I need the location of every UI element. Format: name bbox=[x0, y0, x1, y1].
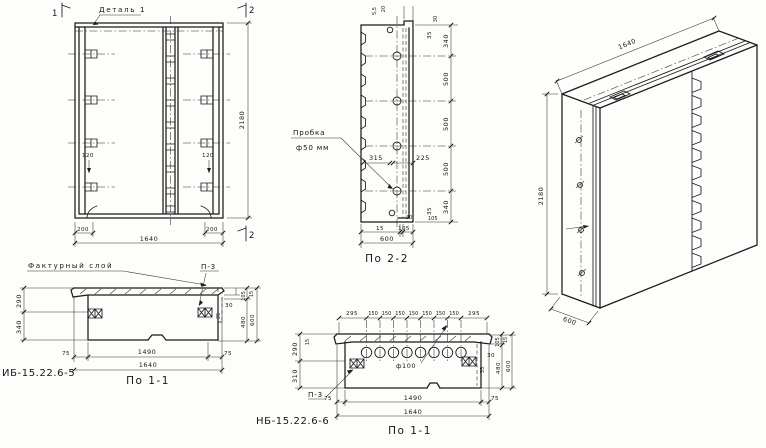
dim-right-15: 15 bbox=[503, 337, 509, 343]
dim-top-150: 150 bbox=[368, 311, 378, 317]
section-outline bbox=[361, 21, 413, 222]
iso-dim-depth: 600 bbox=[562, 315, 578, 327]
dim-top-small-c: 30 bbox=[433, 16, 439, 22]
dim-bottom-total: 600 bbox=[380, 235, 394, 243]
panel-3d-outline bbox=[562, 31, 757, 308]
dim-top-150: 150 bbox=[436, 311, 446, 317]
dim-right-600: 600 bbox=[250, 314, 256, 326]
keyed-joint-teeth-3d bbox=[692, 78, 701, 268]
dim-right-35-bottom: 35 bbox=[427, 207, 433, 215]
panel-working-drawing: Деталь 1 1 2 2 2180 200 200 1640 120 120… bbox=[0, 0, 766, 448]
dim-right-105: 105 bbox=[495, 337, 501, 347]
dim-bottom-1640: 1640 bbox=[404, 408, 423, 416]
iso-dim-ticks bbox=[545, 16, 716, 325]
dim-left-290: 290 bbox=[291, 342, 299, 356]
dim-bottom-75-right: 75 bbox=[224, 351, 232, 357]
dim-top-small-a: 5,5 bbox=[372, 7, 378, 15]
leader-arrowheads bbox=[87, 22, 211, 174]
dim-mid-left: 315 bbox=[369, 154, 383, 162]
corner-arcs bbox=[87, 206, 211, 217]
dim-right-500-a: 500 bbox=[442, 72, 450, 86]
dim-right-480: 480 bbox=[496, 362, 502, 374]
section-marker-2-top: 2 bbox=[249, 6, 254, 16]
dim-left-15: 15 bbox=[305, 339, 311, 345]
dim-top-295-right: 295 bbox=[468, 311, 480, 317]
dim-bottom-75-right: 75 bbox=[491, 396, 499, 402]
dim-bottom-1640: 1640 bbox=[139, 361, 158, 369]
plug-label-line2: ф50 мм bbox=[296, 143, 329, 152]
dim-top-295-left: 295 bbox=[346, 311, 358, 317]
detail-label: Деталь 1 bbox=[99, 5, 146, 14]
dim-right-600: 600 bbox=[506, 360, 512, 372]
joint-hidden-lines bbox=[403, 28, 406, 218]
front-view: Деталь 1 1 2 2 2180 200 200 1640 120 120 bbox=[52, 3, 254, 247]
dim-bottom-small-b: 105 bbox=[428, 216, 438, 222]
edge-arrowhead bbox=[583, 225, 589, 229]
embedded-plates bbox=[88, 308, 222, 322]
dim-bottom-105: 105 bbox=[398, 226, 410, 232]
dim-mid-right: 225 bbox=[416, 154, 430, 162]
dim-right-500-c: 500 bbox=[442, 162, 450, 176]
dim-top-150: 150 bbox=[422, 311, 432, 317]
section-2-2-title: По 2-2 bbox=[365, 253, 409, 265]
dim-insert-right: 120 bbox=[202, 153, 214, 159]
dim-edge-left: 200 bbox=[77, 227, 89, 233]
dim-bottom-15: 15 bbox=[376, 226, 384, 232]
dim-left-340: 340 bbox=[15, 320, 23, 334]
panel-designation: НБ-15.22.6-6 bbox=[256, 416, 329, 427]
dim-gap-35: 35 bbox=[480, 367, 486, 373]
plug-label-line1: Пробка bbox=[293, 128, 325, 137]
small-hole-bottom bbox=[389, 210, 395, 216]
facing-layer-hatch bbox=[345, 336, 471, 341]
keyed-edge-teeth bbox=[361, 32, 366, 213]
small-hole-top bbox=[387, 27, 393, 33]
section-2-2: Пробка ф50 мм 5,5 20 30 35 340 500 500 5… bbox=[291, 6, 458, 265]
dim-right-105: 105 bbox=[241, 291, 247, 301]
section-1-1-left: Фактурный слой П-3 30 35 290 340 105 15 … bbox=[2, 261, 261, 387]
dim-insert-left: 120 bbox=[82, 153, 94, 159]
dim-top-150: 150 bbox=[382, 311, 392, 317]
embedded-inserts bbox=[85, 50, 213, 191]
dim-left-290: 290 bbox=[15, 294, 23, 308]
dim-top-150: 150 bbox=[449, 311, 459, 317]
facing-layer-label: Фактурный слой bbox=[28, 261, 113, 270]
dim-edge-right: 200 bbox=[206, 227, 218, 233]
dim-facing-30: 30 bbox=[225, 303, 233, 309]
panel-designation: ИБ-15.22.6-5 bbox=[2, 368, 75, 379]
dim-top-150: 150 bbox=[395, 311, 405, 317]
dim-ticks bbox=[22, 286, 259, 372]
section-marker-2-bottom: 2 bbox=[249, 231, 254, 241]
dim-gap-35: 35 bbox=[216, 313, 222, 319]
dim-facing-30: 30 bbox=[487, 353, 495, 359]
dim-total-width: 1640 bbox=[140, 235, 159, 243]
dim-right-480: 480 bbox=[241, 316, 247, 328]
centerlines bbox=[68, 16, 230, 225]
facing-layer-hatch bbox=[80, 289, 218, 294]
dim-bottom-small-a: 30 bbox=[406, 215, 412, 221]
isometric-view: 1640 2180 600 bbox=[537, 16, 757, 327]
section-outline bbox=[334, 334, 492, 388]
plug-mark-slashes bbox=[566, 136, 589, 276]
dim-bottom-1490: 1490 bbox=[404, 394, 423, 402]
section-1-1-title: По 1-1 bbox=[388, 425, 432, 437]
iso-dimension-lines bbox=[542, 17, 719, 325]
hole-diameter-label: ф100 bbox=[396, 362, 416, 370]
dim-right-340-bottom: 340 bbox=[442, 200, 450, 214]
dim-top-small-b: 20 bbox=[381, 6, 387, 12]
plate-label: П-3 bbox=[201, 262, 216, 271]
section-1-1-mid: 295 150 150 150 150 150 150 150 295 15 2… bbox=[256, 311, 516, 437]
drawing-sheet: Деталь 1 1 2 2 2180 200 200 1640 120 120… bbox=[0, 0, 766, 448]
dim-right-15: 15 bbox=[249, 291, 255, 297]
dim-left-310: 310 bbox=[291, 369, 299, 383]
dim-bottom-1490: 1490 bbox=[138, 348, 157, 356]
plate-label: П-3 bbox=[308, 390, 323, 399]
leader-arrowheads bbox=[199, 283, 207, 307]
dim-right-35-top: 35 bbox=[427, 31, 433, 39]
dim-right-340-top: 340 bbox=[442, 34, 450, 48]
iso-dim-height: 2180 bbox=[537, 187, 545, 206]
section-marker-1: 1 bbox=[52, 9, 57, 19]
dim-bottom-75-left: 75 bbox=[324, 396, 332, 402]
dim-right-500-b: 500 bbox=[442, 117, 450, 131]
dimension-lines bbox=[20, 271, 261, 374]
iso-dim-width: 1640 bbox=[617, 37, 637, 51]
dim-top-150: 150 bbox=[409, 311, 419, 317]
dim-bottom-75-left: 75 bbox=[62, 351, 70, 357]
dim-height: 2180 bbox=[238, 111, 246, 130]
section-1-1-title: По 1-1 bbox=[126, 375, 170, 387]
